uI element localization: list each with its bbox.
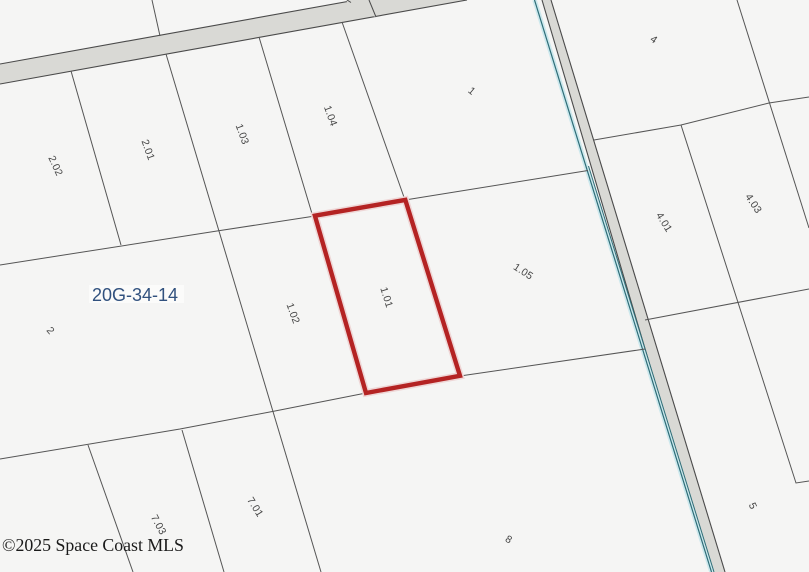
svg-text:©2025 Space Coast MLS: ©2025 Space Coast MLS <box>2 535 184 555</box>
svg-text:20G-34-14: 20G-34-14 <box>92 285 178 305</box>
